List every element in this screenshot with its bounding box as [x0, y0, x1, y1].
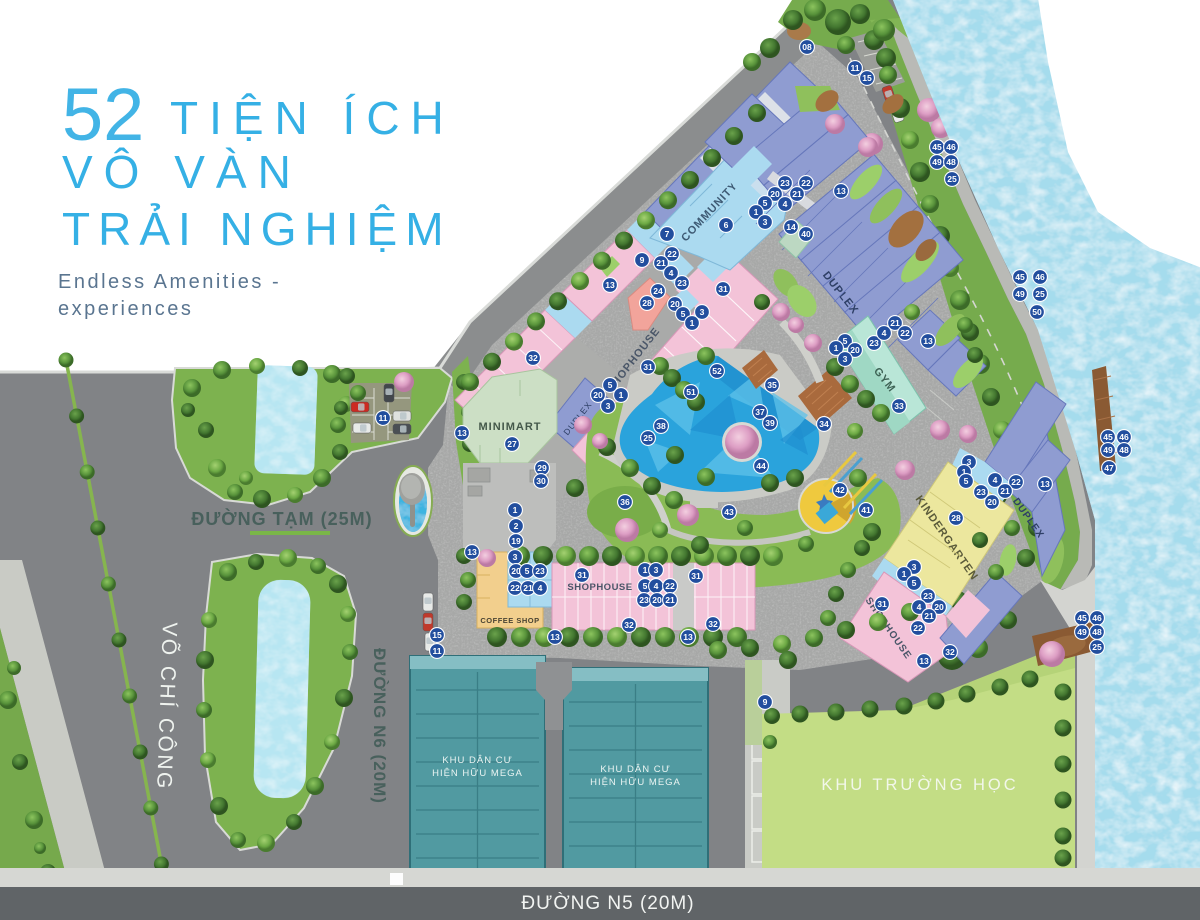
- svg-text:3: 3: [606, 401, 611, 411]
- svg-text:49: 49: [1015, 289, 1025, 299]
- svg-text:32: 32: [624, 620, 634, 630]
- svg-text:4: 4: [917, 602, 922, 612]
- svg-text:35: 35: [767, 380, 777, 390]
- svg-text:13: 13: [919, 656, 929, 666]
- svg-text:4: 4: [993, 475, 998, 485]
- svg-text:20: 20: [770, 189, 780, 199]
- svg-text:ĐƯỜNG TẠM (25M): ĐƯỜNG TẠM (25M): [191, 508, 372, 529]
- svg-text:23: 23: [639, 595, 649, 605]
- svg-text:21: 21: [924, 611, 934, 621]
- svg-text:1: 1: [643, 565, 648, 575]
- svg-text:31: 31: [718, 284, 728, 294]
- svg-text:45: 45: [1103, 432, 1113, 442]
- svg-text:4: 4: [654, 581, 659, 591]
- svg-text:20: 20: [987, 497, 997, 507]
- svg-text:15: 15: [862, 73, 872, 83]
- svg-text:48: 48: [1119, 445, 1129, 455]
- svg-text:46: 46: [1119, 432, 1129, 442]
- svg-text:41: 41: [861, 505, 871, 515]
- svg-text:23: 23: [869, 338, 879, 348]
- svg-text:2: 2: [514, 521, 519, 531]
- svg-text:36: 36: [620, 497, 630, 507]
- svg-text:25: 25: [947, 174, 957, 184]
- svg-text:46: 46: [1035, 272, 1045, 282]
- svg-text:25: 25: [643, 433, 653, 443]
- svg-text:23: 23: [535, 566, 545, 576]
- svg-text:22: 22: [510, 583, 520, 593]
- svg-text:22: 22: [900, 328, 910, 338]
- svg-text:3: 3: [843, 354, 848, 364]
- svg-text:3: 3: [912, 562, 917, 572]
- svg-text:21: 21: [1000, 486, 1010, 496]
- svg-text:KHU DÂN CƯ: KHU DÂN CƯ: [600, 764, 670, 775]
- svg-text:31: 31: [577, 570, 587, 580]
- svg-text:11: 11: [378, 413, 387, 423]
- svg-text:9: 9: [640, 255, 645, 265]
- svg-text:45: 45: [1015, 272, 1025, 282]
- svg-text:TRẢI NGHIỆM: TRẢI NGHIỆM: [62, 203, 452, 255]
- svg-text:14: 14: [786, 222, 796, 232]
- svg-text:MINIMART: MINIMART: [479, 421, 542, 433]
- svg-text:52: 52: [62, 73, 144, 156]
- svg-text:experiences: experiences: [58, 298, 193, 320]
- svg-text:40: 40: [801, 229, 811, 239]
- svg-text:32: 32: [945, 647, 955, 657]
- svg-text:24: 24: [653, 286, 663, 296]
- svg-text:28: 28: [951, 513, 961, 523]
- svg-text:23: 23: [677, 278, 687, 288]
- svg-text:30: 30: [536, 476, 546, 486]
- svg-text:Endless Amenities -: Endless Amenities -: [58, 271, 281, 293]
- svg-text:22: 22: [665, 581, 675, 591]
- svg-text:5: 5: [964, 476, 969, 486]
- svg-text:13: 13: [467, 547, 477, 557]
- svg-text:25: 25: [1092, 642, 1102, 652]
- svg-text:13: 13: [1040, 479, 1050, 489]
- svg-text:13: 13: [836, 186, 846, 196]
- svg-text:HIỆN HỮU MEGA: HIỆN HỮU MEGA: [432, 768, 523, 779]
- svg-text:21: 21: [792, 189, 802, 199]
- svg-text:5: 5: [525, 566, 530, 576]
- svg-text:COFFEE SHOP: COFFEE SHOP: [480, 616, 539, 625]
- svg-text:39: 39: [765, 418, 775, 428]
- svg-text:45: 45: [932, 142, 942, 152]
- svg-text:22: 22: [801, 178, 811, 188]
- svg-text:13: 13: [457, 428, 467, 438]
- svg-text:31: 31: [643, 362, 653, 372]
- svg-text:4: 4: [882, 328, 887, 338]
- svg-text:31: 31: [691, 571, 701, 581]
- svg-text:08: 08: [802, 42, 812, 52]
- svg-text:20: 20: [593, 390, 603, 400]
- svg-text:45: 45: [1077, 613, 1087, 623]
- svg-text:1: 1: [690, 318, 695, 328]
- svg-text:29: 29: [537, 463, 547, 473]
- svg-text:1: 1: [513, 505, 518, 515]
- svg-text:51: 51: [686, 387, 696, 397]
- svg-text:3: 3: [513, 552, 518, 562]
- svg-text:15: 15: [432, 630, 442, 640]
- svg-text:13: 13: [550, 632, 560, 642]
- svg-text:21: 21: [890, 318, 900, 328]
- svg-text:1: 1: [834, 343, 839, 353]
- svg-text:22: 22: [667, 249, 677, 259]
- svg-text:22: 22: [913, 623, 923, 633]
- svg-text:20: 20: [850, 345, 860, 355]
- svg-text:9: 9: [763, 697, 768, 707]
- svg-text:21: 21: [523, 583, 533, 593]
- svg-text:25: 25: [1035, 289, 1045, 299]
- svg-text:38: 38: [656, 421, 666, 431]
- svg-text:43: 43: [724, 507, 734, 517]
- svg-text:19: 19: [511, 536, 521, 546]
- svg-text:5: 5: [763, 198, 768, 208]
- svg-text:32: 32: [528, 353, 538, 363]
- svg-text:SHOPHOUSE: SHOPHOUSE: [567, 582, 632, 593]
- svg-text:49: 49: [1103, 445, 1113, 455]
- svg-text:44: 44: [756, 461, 766, 471]
- svg-text:5: 5: [608, 380, 613, 390]
- svg-text:50: 50: [1032, 307, 1042, 317]
- svg-text:23: 23: [923, 591, 933, 601]
- svg-text:46: 46: [946, 142, 956, 152]
- svg-text:52: 52: [712, 366, 722, 376]
- svg-text:TIỆN ÍCH: TIỆN ÍCH: [170, 92, 455, 144]
- svg-text:3: 3: [763, 217, 768, 227]
- svg-text:4: 4: [783, 199, 788, 209]
- svg-text:VÔ VÀN: VÔ VÀN: [62, 146, 302, 198]
- svg-text:27: 27: [507, 439, 517, 449]
- svg-text:23: 23: [976, 487, 986, 497]
- svg-text:21: 21: [656, 258, 666, 268]
- svg-text:11: 11: [850, 63, 859, 73]
- svg-text:7: 7: [665, 229, 670, 239]
- svg-text:21: 21: [665, 595, 675, 605]
- svg-text:3: 3: [654, 565, 659, 575]
- svg-text:1: 1: [902, 569, 907, 579]
- svg-text:48: 48: [946, 157, 956, 167]
- svg-text:42: 42: [835, 485, 845, 495]
- svg-text:KHU DÂN CƯ: KHU DÂN CƯ: [442, 755, 512, 766]
- svg-text:20: 20: [934, 602, 944, 612]
- svg-text:5: 5: [912, 578, 917, 588]
- svg-text:34: 34: [819, 419, 829, 429]
- svg-text:5: 5: [843, 336, 848, 346]
- svg-text:13: 13: [605, 280, 615, 290]
- svg-text:5: 5: [643, 581, 648, 591]
- svg-text:23: 23: [780, 178, 790, 188]
- svg-text:ĐƯỜNG N5 (20M): ĐƯỜNG N5 (20M): [521, 892, 694, 914]
- svg-text:1: 1: [619, 390, 624, 400]
- svg-text:31: 31: [877, 599, 887, 609]
- svg-text:3: 3: [700, 307, 705, 317]
- svg-text:4: 4: [669, 268, 674, 278]
- svg-text:32: 32: [708, 619, 718, 629]
- svg-text:6: 6: [724, 220, 729, 230]
- svg-text:47: 47: [1104, 463, 1114, 473]
- svg-text:28: 28: [642, 298, 652, 308]
- svg-text:5: 5: [681, 309, 686, 319]
- svg-text:HIỆN HỮU MEGA: HIỆN HỮU MEGA: [590, 777, 681, 788]
- svg-text:4: 4: [538, 583, 543, 593]
- svg-text:46: 46: [1092, 613, 1102, 623]
- svg-text:33: 33: [894, 401, 904, 411]
- svg-text:22: 22: [1011, 477, 1021, 487]
- svg-text:KHU TRƯỜNG HỌC: KHU TRƯỜNG HỌC: [821, 775, 1018, 794]
- svg-text:49: 49: [932, 157, 942, 167]
- svg-text:37: 37: [755, 407, 765, 417]
- svg-text:11: 11: [432, 646, 441, 656]
- svg-text:13: 13: [683, 632, 693, 642]
- svg-text:13: 13: [923, 336, 933, 346]
- svg-text:49: 49: [1077, 627, 1087, 637]
- svg-text:48: 48: [1092, 627, 1102, 637]
- svg-text:20: 20: [652, 595, 662, 605]
- svg-text:1: 1: [754, 207, 759, 217]
- svg-text:ĐƯỜNG N6 (20M): ĐƯỜNG N6 (20M): [370, 648, 389, 804]
